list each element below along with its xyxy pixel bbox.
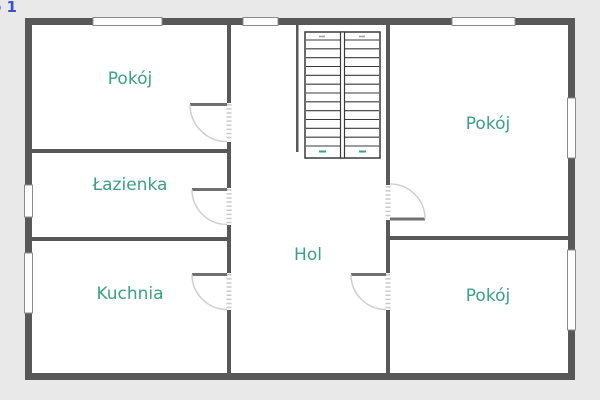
staircase [305,32,380,158]
floor-number-label: o 1 [0,0,17,16]
room-label-lazienka: Łazienka [93,175,168,195]
room-label-pokoj-top-left: Pokój [108,69,152,89]
wall-bottom [25,373,575,380]
wall-right-rooms-seg2 [386,220,390,273]
window-left-kuchnia [25,253,33,313]
window-top-right [452,18,515,26]
room-label-hol: Hol [294,245,322,265]
room-label-kuchnia: Kuchnia [96,284,163,304]
window-top-left [93,18,162,26]
wall-right-rooms-seg3 [386,310,390,373]
window-top-hall [243,18,278,26]
wall-right-rooms-seg1 [386,25,390,185]
wall-right-rooms-divider [390,236,568,240]
wall-left-rooms-seg4 [227,310,231,373]
wall-lazienka-kuchnia [32,237,227,241]
room-label-pokoj-top-right: Pokój [466,114,510,134]
wall-left-rooms-seg2 [227,142,231,188]
wall-stair-side [296,25,299,152]
wall-left-rooms-seg3 [227,225,231,273]
staircase-divider [341,32,345,158]
floor-plan-drawing [0,0,600,400]
window-left-lazienka [25,185,33,217]
wall-left-rooms-seg1 [227,25,231,103]
window-right-bottom [568,250,576,330]
wall-pokoj-lazienka [32,149,227,153]
window-right-top [568,98,576,158]
floor-plan-canvas: Pokój Łazienka Kuchnia Hol Pokój Pokój o… [0,0,600,400]
room-label-pokoj-bottom-right: Pokój [466,286,510,306]
